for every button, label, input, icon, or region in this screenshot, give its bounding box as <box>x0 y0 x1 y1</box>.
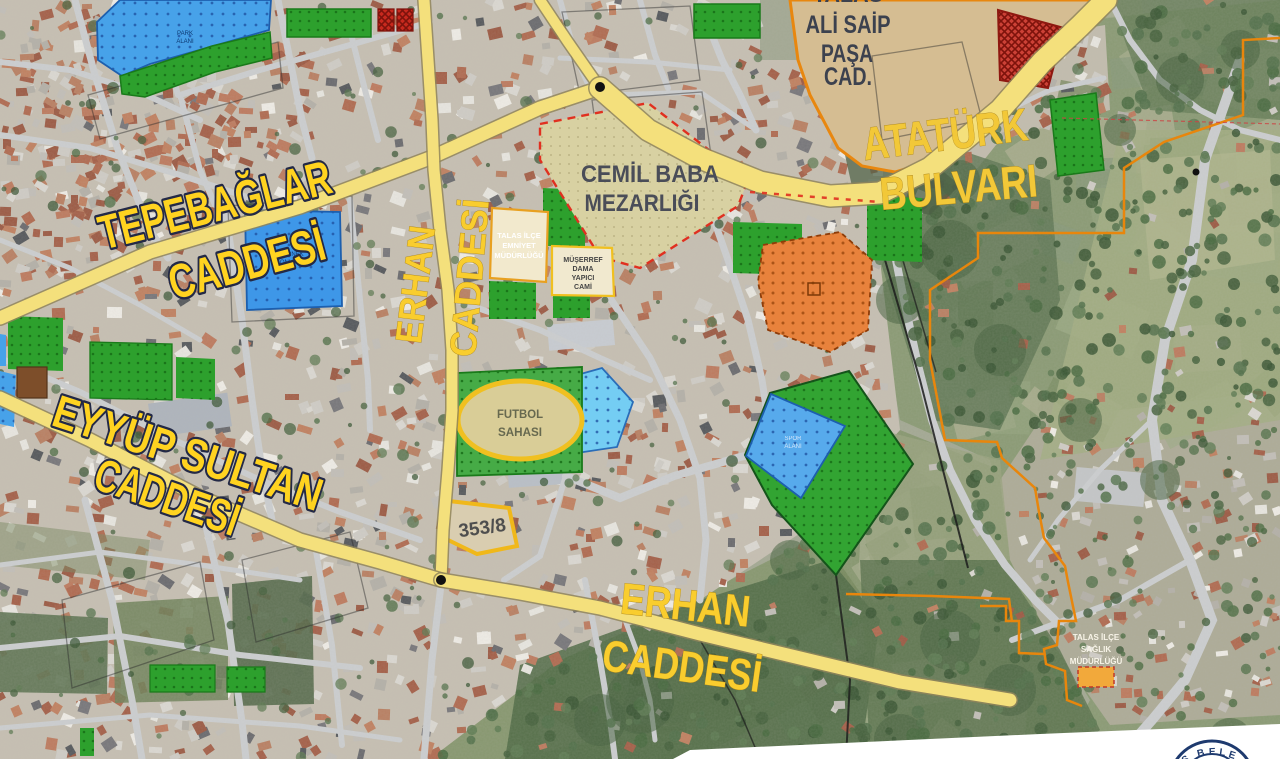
svg-text:DAMA: DAMA <box>573 266 594 273</box>
svg-text:MÜŞERREF: MÜŞERREF <box>563 255 603 264</box>
svg-text:CAD.: CAD. <box>824 63 872 91</box>
svg-text:PARK: PARK <box>177 31 193 37</box>
svg-text:FUTBOL: FUTBOL <box>497 407 543 421</box>
svg-text:TALAS: TALAS <box>813 0 883 8</box>
svg-text:MÜDÜRLÜĞÜ: MÜDÜRLÜĞÜ <box>1070 657 1123 666</box>
svg-text:EMNİYET: EMNİYET <box>502 241 536 250</box>
svg-text:SAĞLIK: SAĞLIK <box>1081 645 1111 654</box>
svg-text:ALANI: ALANI <box>784 444 802 450</box>
svg-text:CAMİ: CAMİ <box>574 283 592 291</box>
svg-text:E: E <box>1209 747 1216 758</box>
svg-text:TALAS İLÇE: TALAS İLÇE <box>497 231 541 240</box>
svg-text:MEZARLIĞI: MEZARLIĞI <box>585 189 700 217</box>
svg-text:CEMİL BABA: CEMİL BABA <box>581 161 719 188</box>
svg-text:MÜDÜRLÜĞÜ: MÜDÜRLÜĞÜ <box>494 251 543 260</box>
svg-text:TALAS İLÇE: TALAS İLÇE <box>1073 633 1120 642</box>
svg-text:SPOR: SPOR <box>784 436 802 442</box>
svg-text:YAPICI: YAPICI <box>572 275 595 282</box>
svg-text:ALANI: ALANI <box>176 39 194 45</box>
svg-text:ALİ SAİP: ALİ SAİP <box>806 11 891 39</box>
svg-text:SAHASI: SAHASI <box>498 425 542 439</box>
